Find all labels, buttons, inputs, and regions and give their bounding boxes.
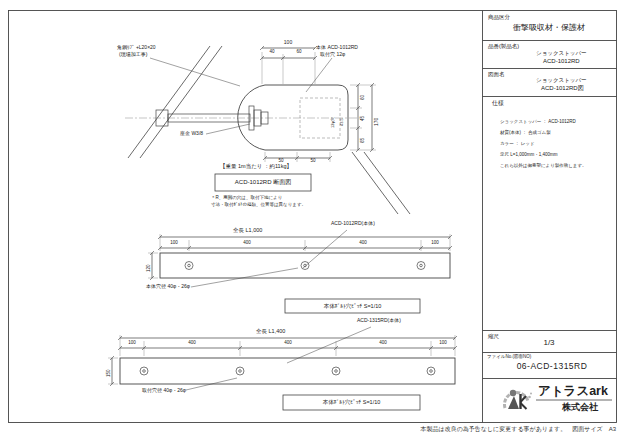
dim-label: 150 xyxy=(107,369,112,377)
dim-label: 100 xyxy=(164,241,184,246)
company-name: アトラスark xyxy=(538,385,608,399)
section-weight-note: 【重量 1m当たり ：約11kg】 xyxy=(220,163,292,169)
dim-label: 43.5 xyxy=(340,118,344,126)
drawing-name-value-2: ACD-1012RD図 xyxy=(541,85,584,92)
file-no-label: ファイルNo.(図面NO) xyxy=(487,355,531,360)
spec-line: ショックストッパー ： ACD-1012RD xyxy=(500,120,576,125)
dim-label: 120 xyxy=(147,264,152,272)
section-note-2: 寸法・取付ﾎﾞﾙﾄの種類、位置等は異なります。 xyxy=(211,203,306,208)
plan2-length-label: 全長 L1,400 xyxy=(256,328,285,334)
dim-label: 12φ穴 xyxy=(331,117,335,128)
dim-label: 65 xyxy=(361,138,366,143)
section-body-label: 本体 ACD-1012RD xyxy=(316,45,358,51)
dim-label: 400 xyxy=(182,341,202,346)
section-caption: ACD-1012RD 断面図 xyxy=(215,179,311,186)
part-no-value: ショックストッパー xyxy=(536,50,587,56)
plan2-part-label: ACD-1315RD(本体) xyxy=(357,318,401,324)
section-rib-label-2: (現場加工事) xyxy=(119,52,147,58)
dim-label: 50 xyxy=(303,159,323,164)
dim-label: 100 xyxy=(278,40,298,46)
footer-note: 本製品は改良の為予告なしに変更する事があります。 図面サイズ A3 xyxy=(200,426,616,433)
dim-label: 400 xyxy=(353,241,373,246)
plan1-pitch-note: 本体ﾎﾞﾙﾄ穴ﾋﾟｯﾁ S=1/10 xyxy=(285,303,420,309)
dim-label: 100 xyxy=(433,341,453,346)
dim-label: 100 xyxy=(122,341,142,346)
plan-view-2-holes xyxy=(140,367,435,375)
section-view-lines xyxy=(125,46,410,214)
part-no-label: 品番(製品名) xyxy=(488,43,519,49)
plan-view-1-holes xyxy=(185,262,425,270)
company-type: 株式会社 xyxy=(562,403,598,413)
drawing-linework xyxy=(0,0,624,442)
plan2-pitch-note: 本体ﾎﾞﾙﾄ穴ﾋﾟｯﾁ S=1/10 xyxy=(283,399,420,405)
plan1-part-label: ACD-1012RD(本体) xyxy=(331,221,375,227)
dim-label: 60 xyxy=(361,95,366,100)
dim-label: 100 xyxy=(425,241,445,246)
dim-label: 400 xyxy=(278,341,298,346)
section-rib-label: 角鋼ﾘﾌﾞ +L20×20 xyxy=(117,45,156,51)
drawing-sheet: 角鋼ﾘﾌﾞ +L20×20 (現場加工事) 座金 W3/8 本体 ACD-101… xyxy=(0,0,624,442)
dim-label: 400 xyxy=(237,241,257,246)
category-value: 衝撃吸収材・保護材 xyxy=(484,24,614,33)
spec-line: これら以外は御要望により製作致します。 xyxy=(500,164,587,169)
category-label: 商品区分 xyxy=(488,14,510,20)
spec-line: 材質(本体) ： 合成ゴム製 xyxy=(500,131,551,136)
section-note: ＊R、用脚の穴は、取付下地により xyxy=(211,196,282,201)
plan-view-1-lines xyxy=(148,230,452,313)
spec-line: 定尺 L=1,000mm・1,400mm xyxy=(500,153,557,158)
spec-label: 仕様 xyxy=(492,100,504,107)
drawing-name-label: 図面名 xyxy=(488,71,505,77)
plan1-hole-note: 本体穴径 40φ・26φ xyxy=(146,284,190,290)
dim-label: 400 xyxy=(373,341,393,346)
drawing-name-value: ショックストッパー xyxy=(536,77,587,83)
dim-label: 170 xyxy=(374,118,380,126)
dim-label: 40 xyxy=(262,50,282,55)
plan1-length-label: 全長 L1,000 xyxy=(233,227,262,233)
dim-label: 60 xyxy=(289,50,309,55)
company-logo-icon xyxy=(497,381,535,419)
dim-label: 45 xyxy=(361,116,366,121)
spec-line: カラー ： レッド xyxy=(500,142,535,147)
file-no-value: 06-ACD-1315RD xyxy=(490,362,614,371)
section-body-label-2: 取付穴 12φ xyxy=(320,52,345,58)
plan2-hole-note: 取付穴径 40φ・26φ xyxy=(142,388,186,394)
section-washer-label: 座金 W3/8 xyxy=(180,131,203,137)
scale-value: 1/3 xyxy=(484,339,614,348)
part-no-value-2: ACD-1012RD xyxy=(543,58,580,65)
plan-view-2-lines xyxy=(108,327,457,410)
